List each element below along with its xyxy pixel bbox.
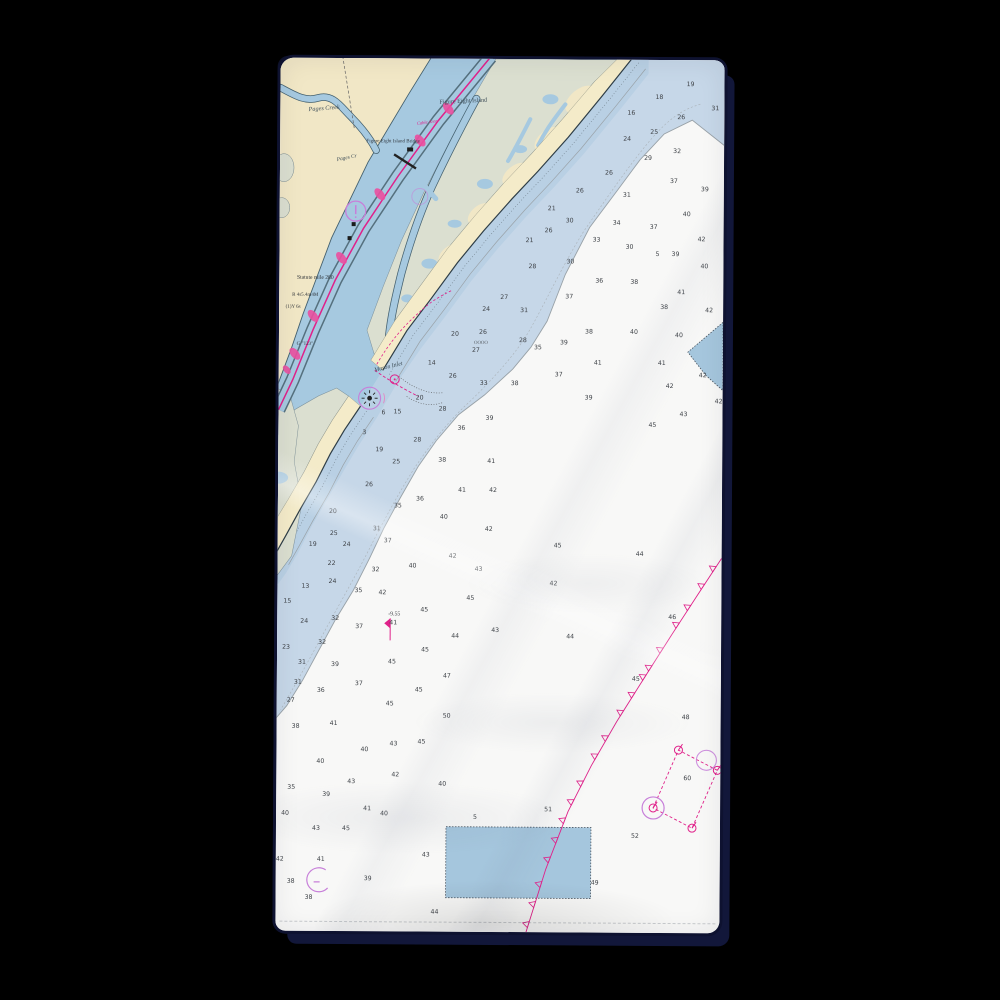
depth-sounding: 40 (440, 514, 448, 521)
depth-sounding: 30 (566, 258, 574, 265)
nautical-chart-print: 1918311626252432292637392631214030343726… (275, 58, 724, 934)
depth-sounding: 27 (500, 294, 508, 301)
depth-sounding: 36 (317, 687, 325, 694)
beach-towel: 1918311626252432292637392631214030343726… (275, 58, 724, 934)
depth-sounding: 34 (613, 220, 621, 227)
depth-sounding: 40 (675, 332, 683, 339)
depth-sounding: 33 (480, 380, 488, 387)
depth-sounding: 41 (317, 856, 325, 863)
depth-sounding: 43 (347, 778, 355, 785)
depth-sounding: 23 (282, 644, 290, 651)
depth-sounding: 38 (438, 457, 446, 464)
depth-sounding: 40 (316, 758, 324, 765)
landmark-square (352, 222, 356, 226)
landmark-square (348, 236, 352, 240)
depth-sounding: 41 (363, 805, 371, 812)
depth-sounding: 37 (355, 623, 363, 630)
depth-sounding: 41 (487, 458, 495, 465)
disposal-area-rect (446, 827, 591, 899)
depth-sounding: 39 (585, 395, 593, 402)
depth-sounding: 32 (331, 615, 339, 622)
depth-sounding: 40 (409, 562, 417, 569)
depth-sounding: 38 (287, 878, 295, 885)
depth-sounding: 42 (489, 487, 497, 494)
depth-sounding: 37 (355, 680, 363, 687)
depth-sounding: 24 (623, 136, 631, 143)
depth-sounding: 40 (281, 810, 289, 817)
depth-sounding: 36 (416, 495, 424, 502)
depth-sounding: 41 (389, 619, 397, 626)
depth-sounding: 16 (627, 110, 635, 117)
depth-sounding: 31 (520, 307, 528, 314)
depth-sounding: 40 (683, 211, 691, 218)
depth-sounding: 49 (591, 880, 599, 887)
depth-sounding: 37 (670, 178, 678, 185)
depth-sounding: 45 (418, 739, 426, 746)
depth-sounding: 44 (451, 633, 459, 640)
depth-sounding: 21 (548, 205, 556, 212)
depth-sounding: 44 (430, 909, 438, 916)
marsh-patch (275, 154, 294, 182)
chart-label: -9.55 (388, 611, 400, 617)
depth-sounding: 45 (415, 686, 423, 693)
depth-sounding: 48 (682, 714, 690, 721)
depth-sounding: 42 (698, 236, 706, 243)
depth-sounding: 39 (331, 661, 339, 668)
depth-sounding: 39 (701, 186, 709, 193)
depth-sounding: 60 (683, 775, 691, 782)
depth-sounding: 42 (485, 526, 493, 533)
depth-sounding: 41 (677, 289, 685, 296)
depth-sounding: 31 (711, 105, 719, 112)
depth-sounding: 3 (362, 429, 366, 436)
depth-sounding: 6 (382, 409, 386, 416)
depth-sounding: 14 (428, 360, 436, 367)
chart-label: R 4s5.4m4M (292, 293, 319, 298)
depth-sounding: 43 (312, 825, 320, 832)
depth-sounding: 39 (322, 791, 330, 798)
depth-sounding: 42 (391, 771, 399, 778)
chart-label: Statute mile 280 (297, 275, 334, 281)
depth-sounding: 32 (372, 566, 380, 573)
depth-sounding: 40 (630, 329, 638, 336)
depth-sounding: 5 (473, 814, 477, 821)
depth-sounding: 31 (298, 659, 306, 666)
depth-sounding: 50 (443, 713, 451, 720)
depth-sounding: 46 (668, 614, 676, 621)
depth-sounding: 28 (519, 337, 527, 344)
depth-sounding: 26 (449, 373, 457, 380)
depth-sounding: 45 (388, 658, 396, 665)
depth-sounding: 32 (318, 639, 326, 646)
depth-sounding: 13 (301, 583, 309, 590)
depth-sounding: 19 (687, 81, 695, 88)
depth-sounding: 40 (380, 810, 388, 817)
depth-sounding: 15 (394, 408, 402, 415)
depth-sounding: 38 (292, 723, 300, 730)
depth-sounding: 45 (466, 595, 474, 602)
depth-sounding: 41 (594, 360, 602, 367)
depth-sounding: 20 (416, 394, 424, 401)
depth-sounding: 30 (566, 217, 574, 224)
depth-sounding: 29 (644, 155, 652, 162)
chart-label: (1)Y 6s (286, 305, 301, 310)
depth-sounding: 43 (491, 627, 499, 634)
depth-sounding: 26 (365, 481, 373, 488)
depth-sounding: 27 (287, 697, 295, 704)
depth-sounding: 37 (650, 224, 658, 231)
depth-sounding: 24 (329, 578, 337, 585)
depth-sounding: 30 (626, 244, 634, 251)
depth-sounding: 32 (673, 148, 681, 155)
depth-sounding: 25 (392, 458, 400, 465)
depth-sounding: 44 (566, 633, 574, 640)
depth-sounding: 5 (655, 251, 659, 258)
depth-sounding: 38 (511, 380, 519, 387)
depth-sounding: 22 (328, 560, 336, 567)
depth-sounding: 45 (632, 676, 640, 683)
depth-sounding: 43 (680, 411, 688, 418)
depth-sounding: 25 (330, 530, 338, 537)
depth-sounding: 40 (438, 781, 446, 788)
depth-sounding: 28 (413, 436, 421, 443)
depth-sounding: 35 (534, 344, 542, 351)
depth-sounding: 45 (342, 825, 350, 832)
inlet-buoy-dot (394, 378, 396, 380)
depth-sounding: 42 (378, 589, 386, 596)
depth-sounding: 19 (375, 446, 383, 453)
chart-label: OOOO (474, 341, 488, 346)
depth-sounding: 18 (655, 94, 663, 101)
depth-sounding: 40 (360, 746, 368, 753)
depth-sounding: 21 (526, 237, 534, 244)
depth-sounding: 28 (439, 406, 447, 413)
depth-sounding: 38 (305, 894, 313, 901)
depth-sounding: 36 (457, 425, 465, 432)
product-photo-stage: 1918311626252432292637392631214030343726… (0, 0, 1000, 1000)
depth-sounding: 42 (276, 856, 284, 863)
chart-label: G "123" (297, 342, 313, 347)
depth-sounding: 42 (699, 372, 707, 379)
depth-sounding: 35 (354, 587, 362, 594)
depth-sounding: 51 (544, 806, 552, 813)
depth-sounding: 26 (479, 329, 487, 336)
depth-sounding: 45 (421, 647, 429, 654)
depth-sounding: 15 (283, 598, 291, 605)
depth-sounding: 44 (636, 551, 644, 558)
depth-sounding: 37 (565, 293, 573, 300)
depth-sounding: 20 (451, 331, 459, 338)
depth-sounding: 31 (294, 679, 302, 686)
depth-sounding: 43 (475, 566, 483, 573)
marsh-patch (275, 198, 289, 218)
depth-sounding: 37 (384, 537, 392, 544)
depth-sounding: 24 (482, 306, 490, 313)
depth-sounding: 25 (650, 129, 658, 136)
chart-label: Figure Eight Island Bridge (366, 139, 420, 144)
depth-sounding: 24 (343, 541, 351, 548)
depth-sounding: 45 (648, 422, 656, 429)
depth-sounding: 37 (555, 371, 563, 378)
depth-sounding: 47 (443, 673, 451, 680)
depth-sounding: 42 (550, 580, 558, 587)
depth-sounding: 26 (576, 187, 584, 194)
depth-sounding: 26 (677, 114, 685, 121)
depth-sounding: 41 (458, 487, 466, 494)
depth-sounding: 35 (394, 502, 402, 509)
depth-sounding: 42 (705, 307, 713, 314)
depth-sounding: 41 (658, 360, 666, 367)
depth-sounding: 28 (528, 263, 536, 270)
depth-sounding: 42 (449, 553, 457, 560)
depth-sounding: 27 (472, 347, 480, 354)
depth-sounding: 26 (545, 227, 553, 234)
landmark-square (407, 147, 413, 151)
depth-sounding: 40 (700, 263, 708, 270)
depth-sounding: 39 (364, 875, 372, 882)
depth-sounding: 24 (300, 618, 308, 625)
depth-sounding: 45 (386, 700, 394, 707)
depth-sounding: 45 (554, 542, 562, 549)
depth-sounding: 38 (630, 279, 638, 286)
depth-sounding: 35 (287, 784, 295, 791)
depth-sounding: 39 (672, 251, 680, 258)
depth-sounding: 19 (309, 541, 317, 548)
depth-sounding: 36 (595, 278, 603, 285)
depth-sounding: 43 (422, 852, 430, 859)
depth-sounding: 31 (623, 192, 631, 199)
depth-sounding: 39 (560, 339, 568, 346)
depth-sounding: 52 (631, 833, 639, 840)
depth-sounding: 20 (329, 508, 337, 515)
depth-sounding: 38 (660, 304, 668, 311)
depth-sounding: 43 (390, 740, 398, 747)
depth-sounding: 38 (585, 329, 593, 336)
depth-sounding: 31 (373, 525, 381, 532)
depth-sounding: 33 (593, 237, 601, 244)
depth-sounding: 42 (666, 383, 674, 390)
depth-sounding: 41 (330, 720, 338, 727)
depth-sounding: 45 (420, 607, 428, 614)
depth-sounding: 42 (715, 398, 723, 405)
depth-sounding: 39 (486, 415, 494, 422)
depth-sounding: 26 (605, 170, 613, 177)
